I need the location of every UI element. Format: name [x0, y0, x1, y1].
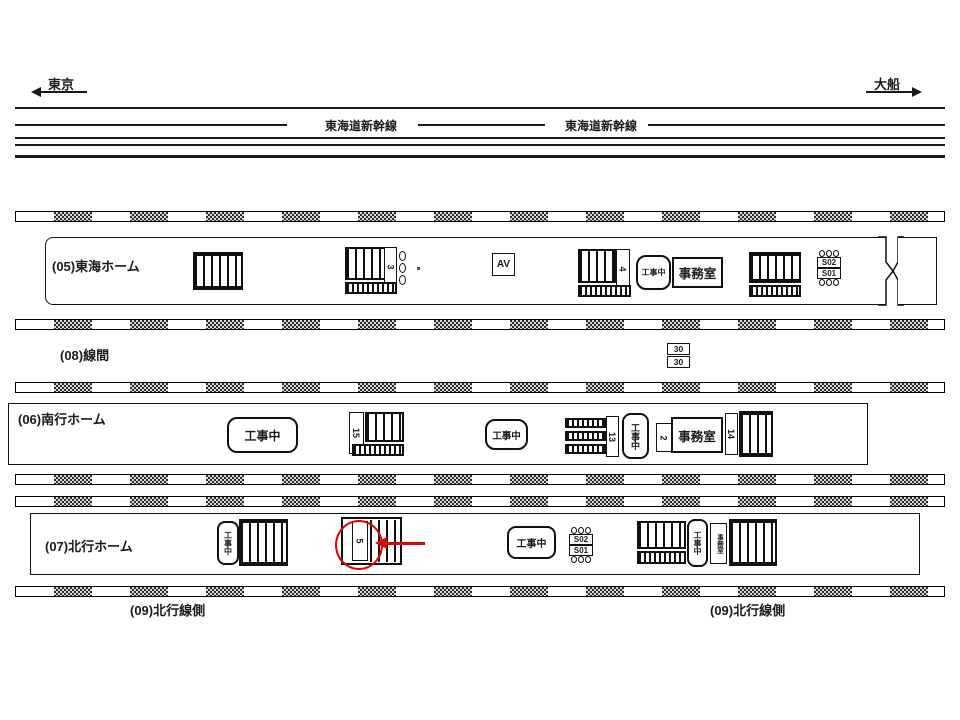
interval-box: 30 30: [667, 343, 690, 368]
construction-box: 工事中: [485, 419, 528, 450]
stair-number: 13: [607, 431, 617, 441]
stair-number: 14: [726, 429, 736, 439]
office-box: 事務室: [671, 417, 723, 453]
signal-badge: S02 S01: [816, 250, 842, 286]
stair-number: 4: [618, 266, 628, 271]
highlight-arrow-shaft: [387, 542, 425, 545]
escalator-icon: [565, 418, 606, 428]
stairs-icon: [345, 247, 386, 280]
stair-number: 15: [351, 428, 361, 438]
stairs-lower-icon: [578, 285, 631, 297]
signal-dots-icon: [571, 527, 591, 534]
stairs-lower-icon: [749, 285, 801, 297]
signal-dots-icon: [571, 556, 591, 563]
oval-marker: [399, 263, 406, 273]
track-line: [15, 144, 945, 146]
track-bar: [15, 474, 945, 485]
platform-07: [30, 513, 920, 575]
stairs-icon: [729, 519, 777, 566]
signal-badge: S02 S01: [568, 527, 594, 563]
stairs-icon: [739, 411, 773, 457]
signal-label-bottom: S01: [817, 268, 841, 279]
platform-07-label: (07)北行ホーム: [45, 536, 133, 555]
stair-number-box: 14: [725, 413, 738, 455]
office-box: 事務室: [672, 257, 723, 288]
line-name-left: 東海道新幹線: [325, 117, 397, 134]
construction-box: 工事中: [636, 255, 671, 290]
area-09-left-label: (09)北行線側: [130, 600, 205, 619]
construction-box: 工事中: [227, 417, 298, 453]
line-name-right: 東海道新幹線: [565, 117, 637, 134]
dot-mark: [417, 267, 420, 270]
stairs-icon: [239, 519, 288, 566]
arrow-right-icon: [912, 87, 922, 97]
stair-number-box: 13: [606, 416, 619, 457]
signal-dots-icon: [819, 279, 839, 286]
oval-marker: [399, 251, 406, 261]
platform-06-label: (06)南行ホーム: [18, 409, 106, 428]
highlight-arrow-icon: [375, 537, 387, 549]
track-bar: [15, 211, 945, 222]
stair-number: 2: [659, 435, 669, 440]
track-bar: [15, 586, 945, 597]
stairs-lower-icon: [352, 444, 404, 456]
escalator-icon: [565, 444, 606, 454]
track-line: [15, 137, 945, 139]
track-line-segment: [418, 124, 545, 126]
stair-number-box: 4: [616, 249, 630, 289]
terminal-right-underline: [866, 91, 913, 93]
arrow-left-icon: [31, 87, 41, 97]
construction-box-vertical: 工事中: [217, 521, 239, 565]
signal-label-top: S02: [569, 534, 593, 545]
stairs-icon: [749, 252, 801, 283]
track-bar: [15, 496, 945, 507]
stairs-lower-icon: [345, 282, 397, 294]
track-line-segment: [15, 124, 287, 126]
track-bar: [15, 319, 945, 330]
construction-box-vertical: 工事中: [622, 413, 649, 459]
signal-label-top: S02: [817, 257, 841, 268]
stair-number-box: 3: [384, 247, 397, 287]
area-09-right-label: (09)北行線側: [710, 600, 785, 619]
platform-05-label: (05)東海ホーム: [52, 256, 140, 275]
stair-number: 3: [385, 264, 395, 269]
station-layout-diagram: 東京 大船 東海道新幹線 東海道新幹線 (05)東海ホーム 3 AV 4 工事中…: [0, 0, 960, 720]
stairs-icon: [193, 252, 243, 290]
terminal-left-underline: [38, 91, 87, 93]
signal-label-bottom: S01: [569, 545, 593, 556]
platform-05-end: [898, 237, 937, 305]
track-line-segment: [648, 124, 945, 126]
area-08-label: (08)線間: [60, 345, 109, 364]
track-bar: [15, 382, 945, 393]
escalator-icon: [565, 431, 606, 441]
stairs-icon: [637, 521, 686, 549]
signal-dots-icon: [819, 250, 839, 257]
stairs-icon: [365, 412, 404, 442]
track-line: [15, 107, 945, 109]
office-box-vertical: 事務室: [710, 523, 727, 564]
interval-bottom: 30: [667, 356, 690, 368]
interval-top: 30: [667, 343, 690, 355]
construction-box: 工事中: [507, 526, 556, 559]
av-box: AV: [492, 253, 515, 276]
stairs-icon: [578, 249, 616, 283]
stair-number-box: 2: [656, 423, 672, 452]
oval-marker: [399, 275, 406, 285]
track-line: [15, 155, 945, 158]
construction-box-vertical: 工事中: [687, 519, 708, 567]
stairs-lower-icon: [637, 551, 686, 564]
